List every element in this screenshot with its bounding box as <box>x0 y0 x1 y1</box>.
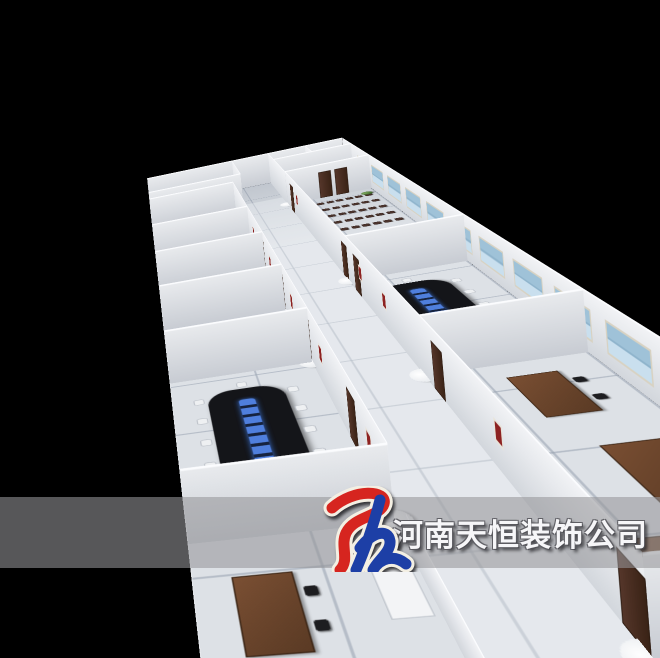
classroom-chair <box>344 219 354 222</box>
wall-art <box>381 290 387 311</box>
window-pane <box>405 187 422 218</box>
classroom-chair <box>326 201 335 204</box>
office-chair <box>303 585 320 596</box>
office-chair <box>591 393 610 400</box>
window-pane <box>478 236 505 279</box>
company-name: 河南天恒装饰公司 <box>392 517 648 554</box>
window-pane <box>387 175 402 204</box>
classroom-chair <box>347 210 356 213</box>
classroom-chair <box>337 212 346 215</box>
classroom-chair <box>331 206 340 209</box>
classroom-chair <box>354 217 364 220</box>
classroom-chair <box>354 195 363 198</box>
office-chair <box>313 619 331 631</box>
classroom-chair <box>393 217 404 221</box>
classroom-chair <box>350 225 360 229</box>
desk <box>506 371 604 418</box>
logo-monogram-th <box>318 486 430 572</box>
classroom-chair <box>385 211 395 214</box>
classroom-chair <box>357 208 366 211</box>
classroom-chair <box>345 197 354 200</box>
conference-chair <box>449 278 463 283</box>
classroom-chair <box>351 203 360 206</box>
window-pane <box>605 319 654 388</box>
company-logo <box>318 486 430 572</box>
conference-chair <box>294 404 308 412</box>
desk <box>599 438 660 503</box>
classroom-chair <box>335 199 344 202</box>
classroom-chair <box>372 221 382 225</box>
desk <box>231 571 316 657</box>
classroom-chair <box>364 215 374 218</box>
classroom-chair <box>341 204 350 207</box>
office-chair <box>571 376 588 382</box>
wall-art <box>295 193 298 206</box>
building-floor <box>150 168 660 658</box>
conference-chair <box>200 438 213 446</box>
door <box>346 386 359 454</box>
classroom-chair <box>375 213 385 216</box>
conference-chair <box>286 386 300 393</box>
classroom-chair <box>371 199 380 202</box>
double-door-panel <box>318 170 333 198</box>
conference-chair <box>193 399 205 406</box>
double-door-panel <box>334 167 349 195</box>
conference-chair <box>196 418 208 425</box>
conference-chair <box>303 425 318 433</box>
wall-art <box>318 342 323 366</box>
classroom-chair <box>368 206 378 209</box>
classroom-chair <box>361 223 371 227</box>
window-pane <box>371 165 384 191</box>
classroom-chair <box>361 201 370 204</box>
wall-art <box>493 417 504 451</box>
classroom-chair <box>383 219 393 223</box>
rendering-canvas: 河南天恒装饰公司 <box>0 0 660 658</box>
conference-chair <box>462 289 477 294</box>
classroom-chair <box>378 205 388 208</box>
